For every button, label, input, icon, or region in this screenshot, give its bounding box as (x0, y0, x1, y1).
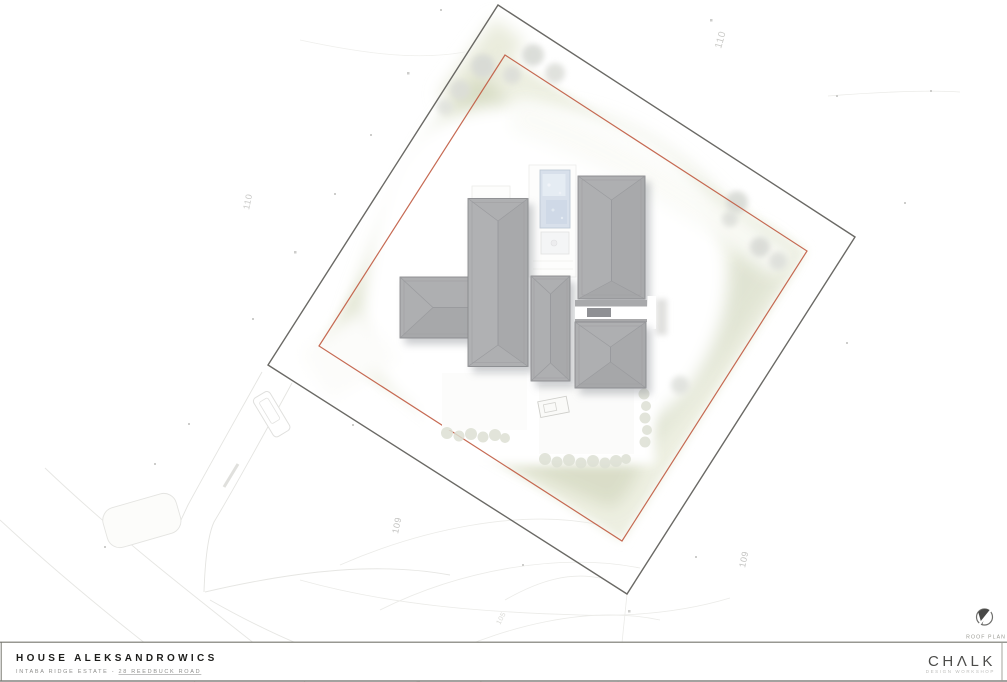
svg-text:105: 105 (496, 611, 508, 626)
svg-text:INTABA RIDGE ESTATE - 28 REEDB: INTABA RIDGE ESTATE - 28 REEDBUCK ROAD (16, 669, 201, 675)
svg-text:109: 109 (737, 550, 750, 568)
svg-text:DESIGN WORKSHOP: DESIGN WORKSHOP (926, 669, 995, 674)
svg-text:110: 110 (713, 30, 728, 50)
svg-text:ROOF PLAN: ROOF PLAN (966, 635, 1006, 641)
svg-text:CHΛLK: CHΛLK (928, 653, 996, 670)
svg-text:HOUSE ALEKSANDROWICS: HOUSE ALEKSANDROWICS (16, 653, 218, 664)
svg-text:109: 109 (390, 516, 403, 534)
svg-text:110: 110 (241, 193, 254, 211)
